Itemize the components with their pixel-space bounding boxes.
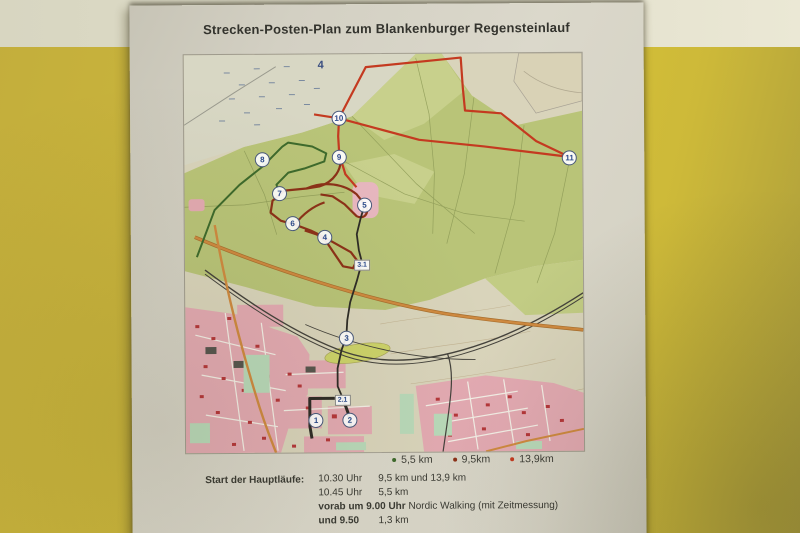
- checkpoint-9: 9: [332, 150, 347, 165]
- schedule-distance: 1,3 km: [378, 515, 408, 526]
- checkpoint-2.1: 2.1: [335, 395, 351, 406]
- checkpoint-5: 5: [357, 197, 372, 212]
- checkpoint-7: 7: [272, 186, 287, 201]
- schedule-distance: 5,5 km: [378, 487, 408, 498]
- route-marker-dot: [453, 458, 457, 462]
- checkpoint-11: 11: [562, 150, 577, 165]
- schedule-time: vorab um 9.00 Uhr: [318, 501, 405, 513]
- schedule-time: und 9.50: [318, 514, 378, 528]
- checkpoint-4: 4: [318, 60, 324, 72]
- map-overlay: 410891176543.132.112: [184, 53, 584, 453]
- checkpoint-3.1: 3.1: [354, 260, 370, 271]
- schedule-rows: 10.30 Uhr9,5 km und 13,9 km 10.45 Uhr5,5…: [318, 470, 648, 528]
- route-marker-dot: [392, 458, 396, 462]
- checkpoint-2: 2: [342, 413, 357, 428]
- topographic-map: 410891176543.132.112: [184, 53, 584, 453]
- poster-paper: Strecken-Posten-Plan zum Blankenburger R…: [129, 2, 646, 533]
- legend-item: 13,9km: [510, 453, 554, 465]
- legend-item: 9,5km: [453, 453, 491, 465]
- legend-row: 5,5 km9,5km13,9km: [392, 453, 554, 466]
- schedule-row: und 9.501,3 km: [318, 512, 648, 528]
- route-marker-dot: [510, 457, 514, 461]
- checkpoint-10: 10: [331, 111, 346, 126]
- schedule-time: 10.45 Uhr: [318, 486, 378, 500]
- schedule-heading: Start der Hauptläufe:: [205, 474, 304, 489]
- legend-label: 5,5 km: [401, 454, 433, 466]
- checkpoint-3: 3: [339, 331, 354, 346]
- schedule-note: Nordic Walking (mit Zeitmessung): [406, 500, 559, 512]
- schedule-distance: 9,5 km und 13,9 km: [378, 473, 466, 485]
- checkpoint-4: 4: [317, 230, 332, 245]
- checkpoint-1: 1: [308, 413, 323, 428]
- checkpoint-8: 8: [255, 152, 270, 167]
- schedule-time: 10.30 Uhr: [318, 472, 378, 486]
- legend-label: 9,5km: [462, 453, 491, 465]
- legend-item: 5,5 km: [392, 454, 433, 466]
- poster-title: Strecken-Posten-Plan zum Blankenburger R…: [129, 19, 643, 37]
- checkpoint-6: 6: [285, 216, 300, 231]
- legend-label: 13,9km: [519, 453, 554, 465]
- photo-scene: Strecken-Posten-Plan zum Blankenburger R…: [0, 0, 800, 533]
